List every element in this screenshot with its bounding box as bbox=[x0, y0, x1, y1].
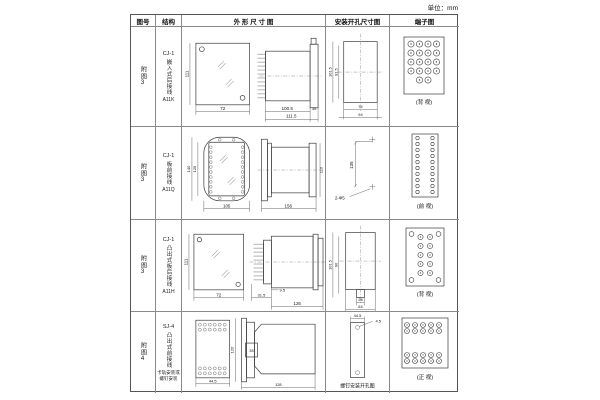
row1-terminal-cell: (背 视) bbox=[390, 27, 459, 127]
header-structure: 结构 bbox=[156, 15, 182, 27]
row4-terminal-cell: (正 视) bbox=[390, 312, 459, 393]
type-label: 凸出式板后接线 bbox=[165, 245, 173, 287]
dim-cutout-h1: 74 bbox=[358, 104, 363, 109]
dim-side-depth2: 111.5 bbox=[286, 113, 297, 118]
dim-front-width: 105 bbox=[223, 203, 231, 208]
row1-outline-diagram: 111 72 100.5 35 111.5 bbox=[182, 27, 325, 127]
row3-terminal-diagram: (背 视) bbox=[390, 220, 459, 312]
type-label: 嵌入式后接线 bbox=[165, 59, 173, 95]
unit-note: 单位：mm bbox=[428, 2, 458, 12]
type-label: 凸出式前接线 bbox=[165, 332, 173, 368]
type-label: 板前接线 bbox=[165, 161, 173, 185]
dim-side-height: 110 bbox=[319, 166, 324, 173]
terminal-view-label: (前 视) bbox=[417, 202, 433, 210]
row1-install-diagram: 101.5 91.5 74 94 bbox=[326, 27, 389, 127]
header-terminal: 端子图 bbox=[390, 15, 459, 27]
row3-outline-diagram: 111 72 31.5 9.5 126 bbox=[182, 220, 325, 312]
row1-terminal-diagram: (背 视) bbox=[390, 27, 459, 127]
model-label: CJ-1 bbox=[163, 237, 175, 243]
header-fig-no: 图号 bbox=[131, 15, 156, 27]
row2-outline-diagram: 140 125 105 156 110 bbox=[182, 127, 325, 220]
dim-cutout-v1: 101.5 bbox=[327, 259, 332, 270]
dim-side-w3: 126 bbox=[293, 301, 301, 306]
row2-fig-no: 附图3 bbox=[131, 127, 156, 220]
dim-front-h2: 125 bbox=[192, 164, 197, 171]
dim-cutout-h2: 64 bbox=[358, 303, 363, 308]
row4-outline-cell: 44.5 35 120 128 bbox=[182, 312, 326, 393]
dim-front-height: 111 bbox=[183, 258, 188, 265]
dim-side-w2: 9.5 bbox=[280, 287, 286, 292]
row4-install-cell: 44.5 4.5 螺钉安装开孔图 bbox=[326, 312, 390, 393]
row4-install-diagram: 44.5 4.5 螺钉安装开孔图 bbox=[326, 312, 389, 393]
dim-side-width: 128 bbox=[275, 382, 282, 387]
row4-structure: SJ-4 凸出式前接线 卡轨安装或螺钉安装 bbox=[156, 312, 182, 393]
model-label: CJ-1 bbox=[163, 153, 175, 159]
row3-structure: CJ-1 凸出式板后接线 A11H bbox=[156, 220, 182, 312]
dim-cutout-v1: 101.5 bbox=[327, 66, 332, 77]
code-label: A11K bbox=[163, 97, 175, 103]
dim-front-width: 44.5 bbox=[209, 378, 218, 383]
dim-front-height: 111 bbox=[184, 70, 189, 77]
terminal-view-label: (正 视) bbox=[417, 373, 433, 381]
row2-outline-cell: 140 125 105 156 110 bbox=[182, 127, 326, 220]
fig-no-label: 附图3 bbox=[139, 255, 148, 276]
dim-side-inner: 35 bbox=[249, 348, 254, 353]
code-label: A11Q bbox=[162, 187, 174, 193]
row2-install-diagram: 135 2-Φ5 bbox=[326, 127, 389, 220]
row3-terminal-cell: (背 视) bbox=[390, 220, 459, 312]
model-label: SJ-4 bbox=[163, 324, 174, 330]
dim-cutout-v2: 91.5 bbox=[333, 67, 338, 75]
mounting-note: 卡轨安装或螺钉安装 bbox=[157, 370, 181, 381]
dim-strip-width: 44.5 bbox=[354, 313, 362, 318]
row2-install-cell: 135 2-Φ5 bbox=[326, 127, 390, 220]
row1-install-cell: 101.5 91.5 74 94 bbox=[326, 27, 390, 127]
spec-table: 图号 结构 外 形 尺 寸 图 安装开孔尺寸图 端子图 附图3 CJ-1 嵌入式… bbox=[130, 14, 458, 392]
dim-hole-spacing: 135 bbox=[349, 160, 354, 168]
dim-side-height: 120 bbox=[230, 346, 235, 353]
dim-hole-callout: 2-Φ5 bbox=[335, 195, 345, 200]
row3-install-diagram: 101.5 90 28 64 bbox=[326, 220, 389, 312]
fig-no-label: 附图3 bbox=[139, 66, 148, 87]
header-outline: 外 形 尺 寸 图 bbox=[182, 15, 326, 27]
dim-cutout-h2: 94 bbox=[358, 111, 363, 116]
row3-install-cell: 101.5 90 28 64 bbox=[326, 220, 390, 312]
row2-structure: CJ-1 板前接线 A11Q bbox=[156, 127, 182, 220]
row3-fig-no: 附图3 bbox=[131, 220, 156, 312]
row2-terminal-diagram: (前 视) bbox=[390, 127, 459, 220]
row1-fig-no: 附图3 bbox=[131, 27, 156, 127]
fig-no-label: 附图3 bbox=[139, 163, 148, 184]
document-page: 单位：mm 图号 结构 外 形 尺 寸 图 安装开孔尺寸图 端子图 附图3 CJ… bbox=[0, 0, 600, 400]
row4-fig-no: 附图4 bbox=[131, 312, 156, 393]
row1-structure: CJ-1 嵌入式后接线 A11K bbox=[156, 27, 182, 127]
dim-front-h1: 140 bbox=[186, 164, 191, 171]
dim-side-width: 156 bbox=[285, 203, 293, 208]
dim-front-width: 72 bbox=[216, 292, 221, 297]
fig-no-label: 附图4 bbox=[139, 342, 148, 363]
row4-outline-diagram: 44.5 35 120 128 bbox=[182, 312, 325, 393]
header-install: 安装开孔尺寸图 bbox=[326, 15, 390, 27]
terminal-view-label: (背 视) bbox=[417, 290, 433, 298]
code-label: A11H bbox=[162, 289, 174, 295]
install-caption: 螺钉安装开孔图 bbox=[340, 382, 374, 389]
dim-hole-dia: 4.5 bbox=[375, 318, 381, 323]
dim-front-width: 72 bbox=[220, 105, 225, 110]
dim-side-w1: 31.5 bbox=[258, 292, 267, 297]
model-label: CJ-1 bbox=[163, 51, 175, 57]
row3-outline-cell: 111 72 31.5 9.5 126 bbox=[182, 220, 326, 312]
terminal-view-label: (背 视) bbox=[416, 98, 432, 106]
dim-side-flange: 35 bbox=[312, 105, 317, 110]
row2-terminal-cell: (前 视) bbox=[390, 127, 459, 220]
row1-outline-cell: 111 72 100.5 35 111.5 bbox=[182, 27, 326, 127]
row4-terminal-diagram: (正 视) bbox=[390, 312, 459, 393]
dim-cutout-v2: 90 bbox=[333, 262, 338, 267]
dim-side-depth1: 100.5 bbox=[282, 105, 294, 110]
